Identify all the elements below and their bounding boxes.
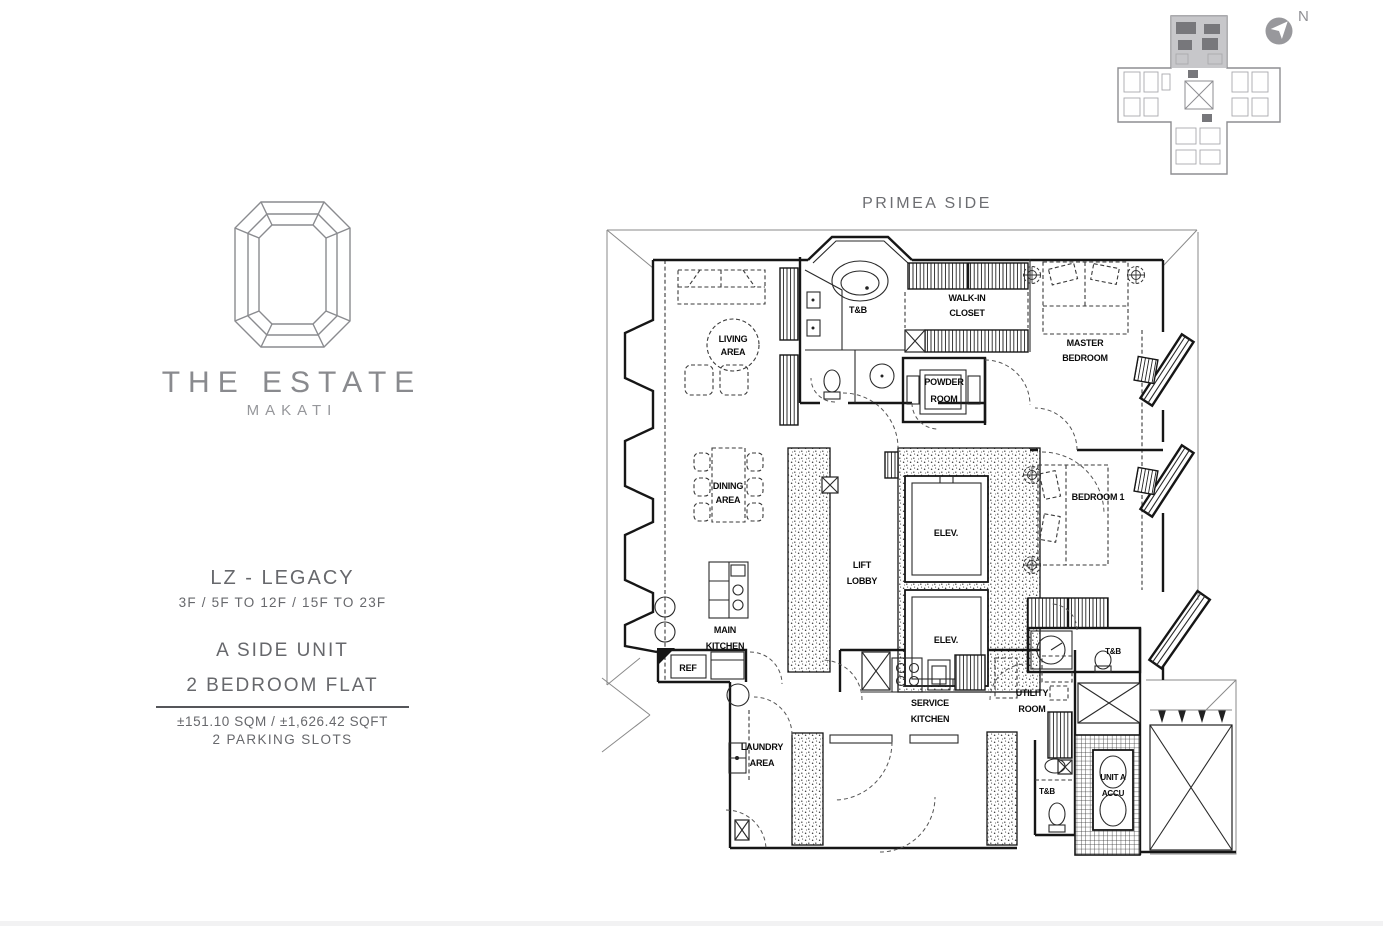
ceiling-symbols (1024, 267, 1145, 574)
compass-north-label: N (1298, 8, 1309, 25)
unit-floors: 3F / 5F TO 12F / 15F TO 23F (120, 595, 445, 610)
powder-room-fixtures (903, 358, 985, 422)
room-label-closet-2: CLOSET (949, 308, 985, 318)
room-label-powder-1: POWDER (924, 377, 964, 387)
room-label-service-kitchen-2: KITCHEN (911, 714, 950, 724)
room-label-service-tb: T&B (1039, 787, 1055, 796)
room-label-lobby-1: LIFT (853, 560, 872, 570)
unit-type: 2 BEDROOM FLAT (120, 675, 445, 697)
laundry-fixtures (729, 710, 749, 840)
room-label-master-bedroom-2: BEDROOM (1062, 353, 1108, 363)
unit-info: LZ - LEGACY 3F / 5F TO 12F / 15F TO 23F … (120, 567, 445, 747)
room-label-lobby-2: LOBBY (847, 576, 878, 586)
room-label-accu-2: ACCU (1102, 789, 1125, 798)
room-label-main-kitchen-2: KITCHEN (706, 641, 745, 651)
accu-and-shafts (1075, 683, 1232, 855)
room-label-closet-1: WALK-IN (948, 293, 985, 303)
room-label-master-bedroom-1: MASTER (1067, 338, 1105, 348)
room-label-bedroom1: BEDROOM 1 (1072, 492, 1125, 502)
room-label-laundry-1: LAUNDRY (741, 742, 783, 752)
unit-area: ±151.10 SQM / ±1,626.42 SQFT (120, 714, 445, 729)
divider-rule (156, 706, 409, 708)
master-bath-fixtures (780, 261, 905, 425)
master-bedroom-furniture (1043, 262, 1128, 334)
room-label-dining-1: DINING (713, 481, 743, 491)
brand-city: MAKATI (112, 402, 472, 419)
room-label-ref: REF (679, 663, 697, 673)
bottom-strip (0, 921, 1383, 926)
room-label-accu-1: UNIT A (1100, 773, 1126, 782)
room-label-elevator-2: ELEV. (934, 635, 958, 645)
unit-side: A SIDE UNIT (120, 640, 445, 662)
room-label-bedroom1-tb: T&B (1105, 647, 1121, 656)
room-label-utility-2: ROOM (1018, 704, 1045, 714)
room-label-master-tb: T&B (849, 305, 868, 315)
room-label-utility-1: UTILITY (1016, 688, 1049, 698)
room-label-living-1: LIVING (719, 334, 748, 344)
floor-plan-page: THE ESTATE MAKATI LZ - LEGACY 3F / 5F TO… (0, 0, 1383, 926)
room-label-elevator-1: ELEV. (934, 528, 958, 538)
room-label-living-2: AREA (721, 347, 746, 357)
unit-series: LZ - LEGACY (120, 567, 445, 590)
brand-name: THE ESTATE (112, 366, 472, 400)
room-label-main-kitchen-1: MAIN (714, 625, 736, 635)
room-label-service-kitchen-1: SERVICE (911, 698, 949, 708)
compass-icon: N (1248, 2, 1318, 62)
unit-parking: 2 PARKING SLOTS (120, 732, 445, 747)
room-label-laundry-2: AREA (750, 758, 775, 768)
room-label-powder-2: ROOM (930, 394, 957, 404)
room-label-dining-2: AREA (716, 495, 741, 505)
gem-logo-icon (225, 197, 360, 352)
floor-plan: LIVING AREA DINING AREA T&B WALK-IN CLOS… (580, 180, 1260, 900)
